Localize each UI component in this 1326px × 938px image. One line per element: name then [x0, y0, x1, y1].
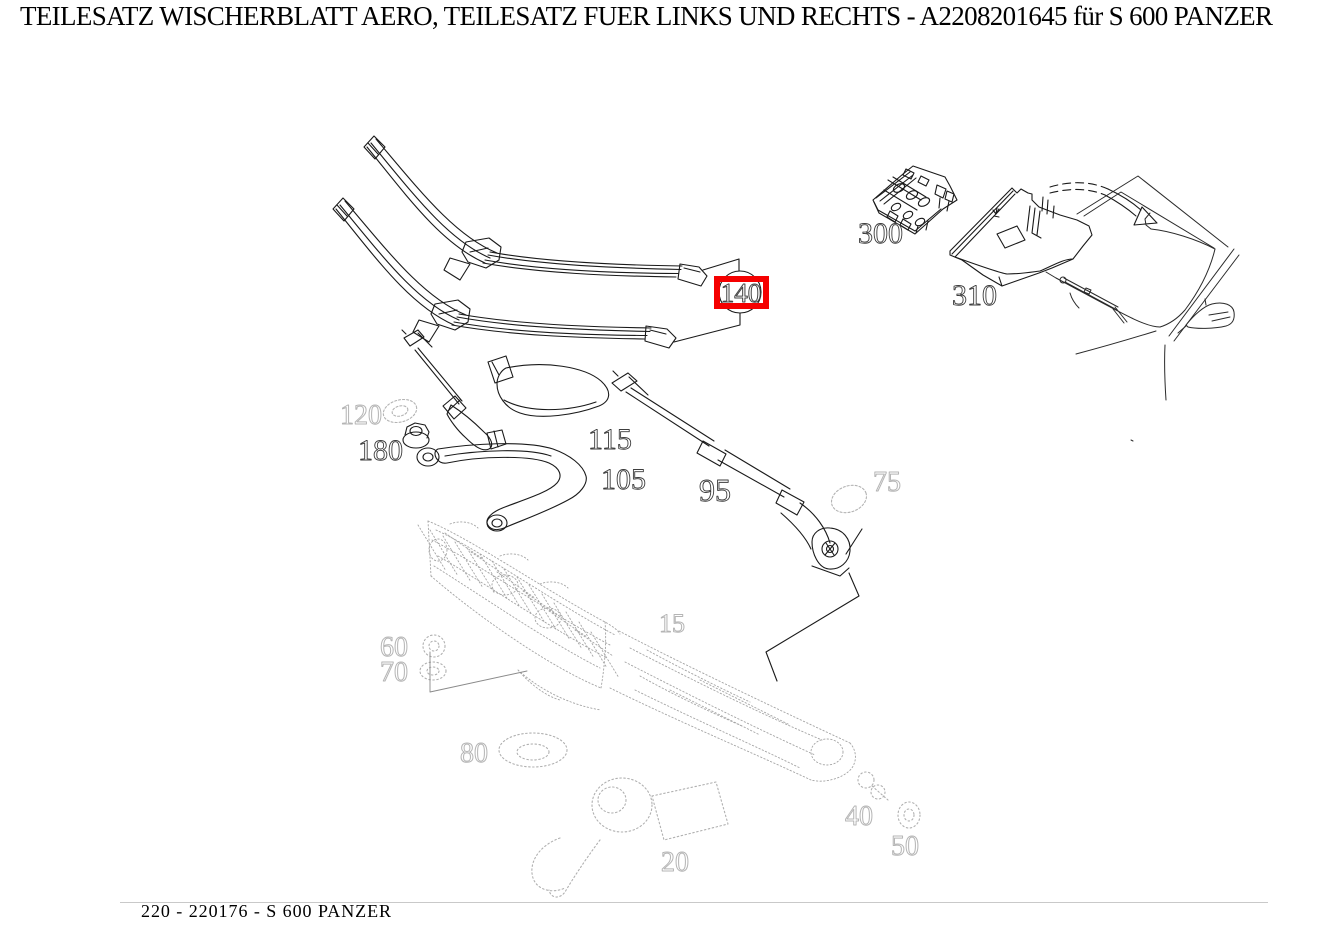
svg-text:105: 105: [601, 463, 646, 496]
svg-text:80: 80: [460, 738, 488, 769]
svg-text:120: 120: [340, 400, 382, 431]
svg-text:50: 50: [891, 831, 919, 862]
svg-text:70: 70: [380, 657, 408, 688]
svg-text:20: 20: [661, 847, 689, 878]
svg-text:40: 40: [845, 801, 873, 832]
svg-text:300: 300: [858, 217, 903, 250]
svg-text:180: 180: [358, 434, 403, 467]
svg-text:75: 75: [873, 467, 901, 498]
svg-text:15: 15: [659, 609, 685, 638]
svg-text:95: 95: [699, 472, 731, 508]
svg-text:140: 140: [721, 278, 762, 308]
svg-text:115: 115: [588, 423, 632, 456]
svg-text:310: 310: [952, 279, 997, 312]
